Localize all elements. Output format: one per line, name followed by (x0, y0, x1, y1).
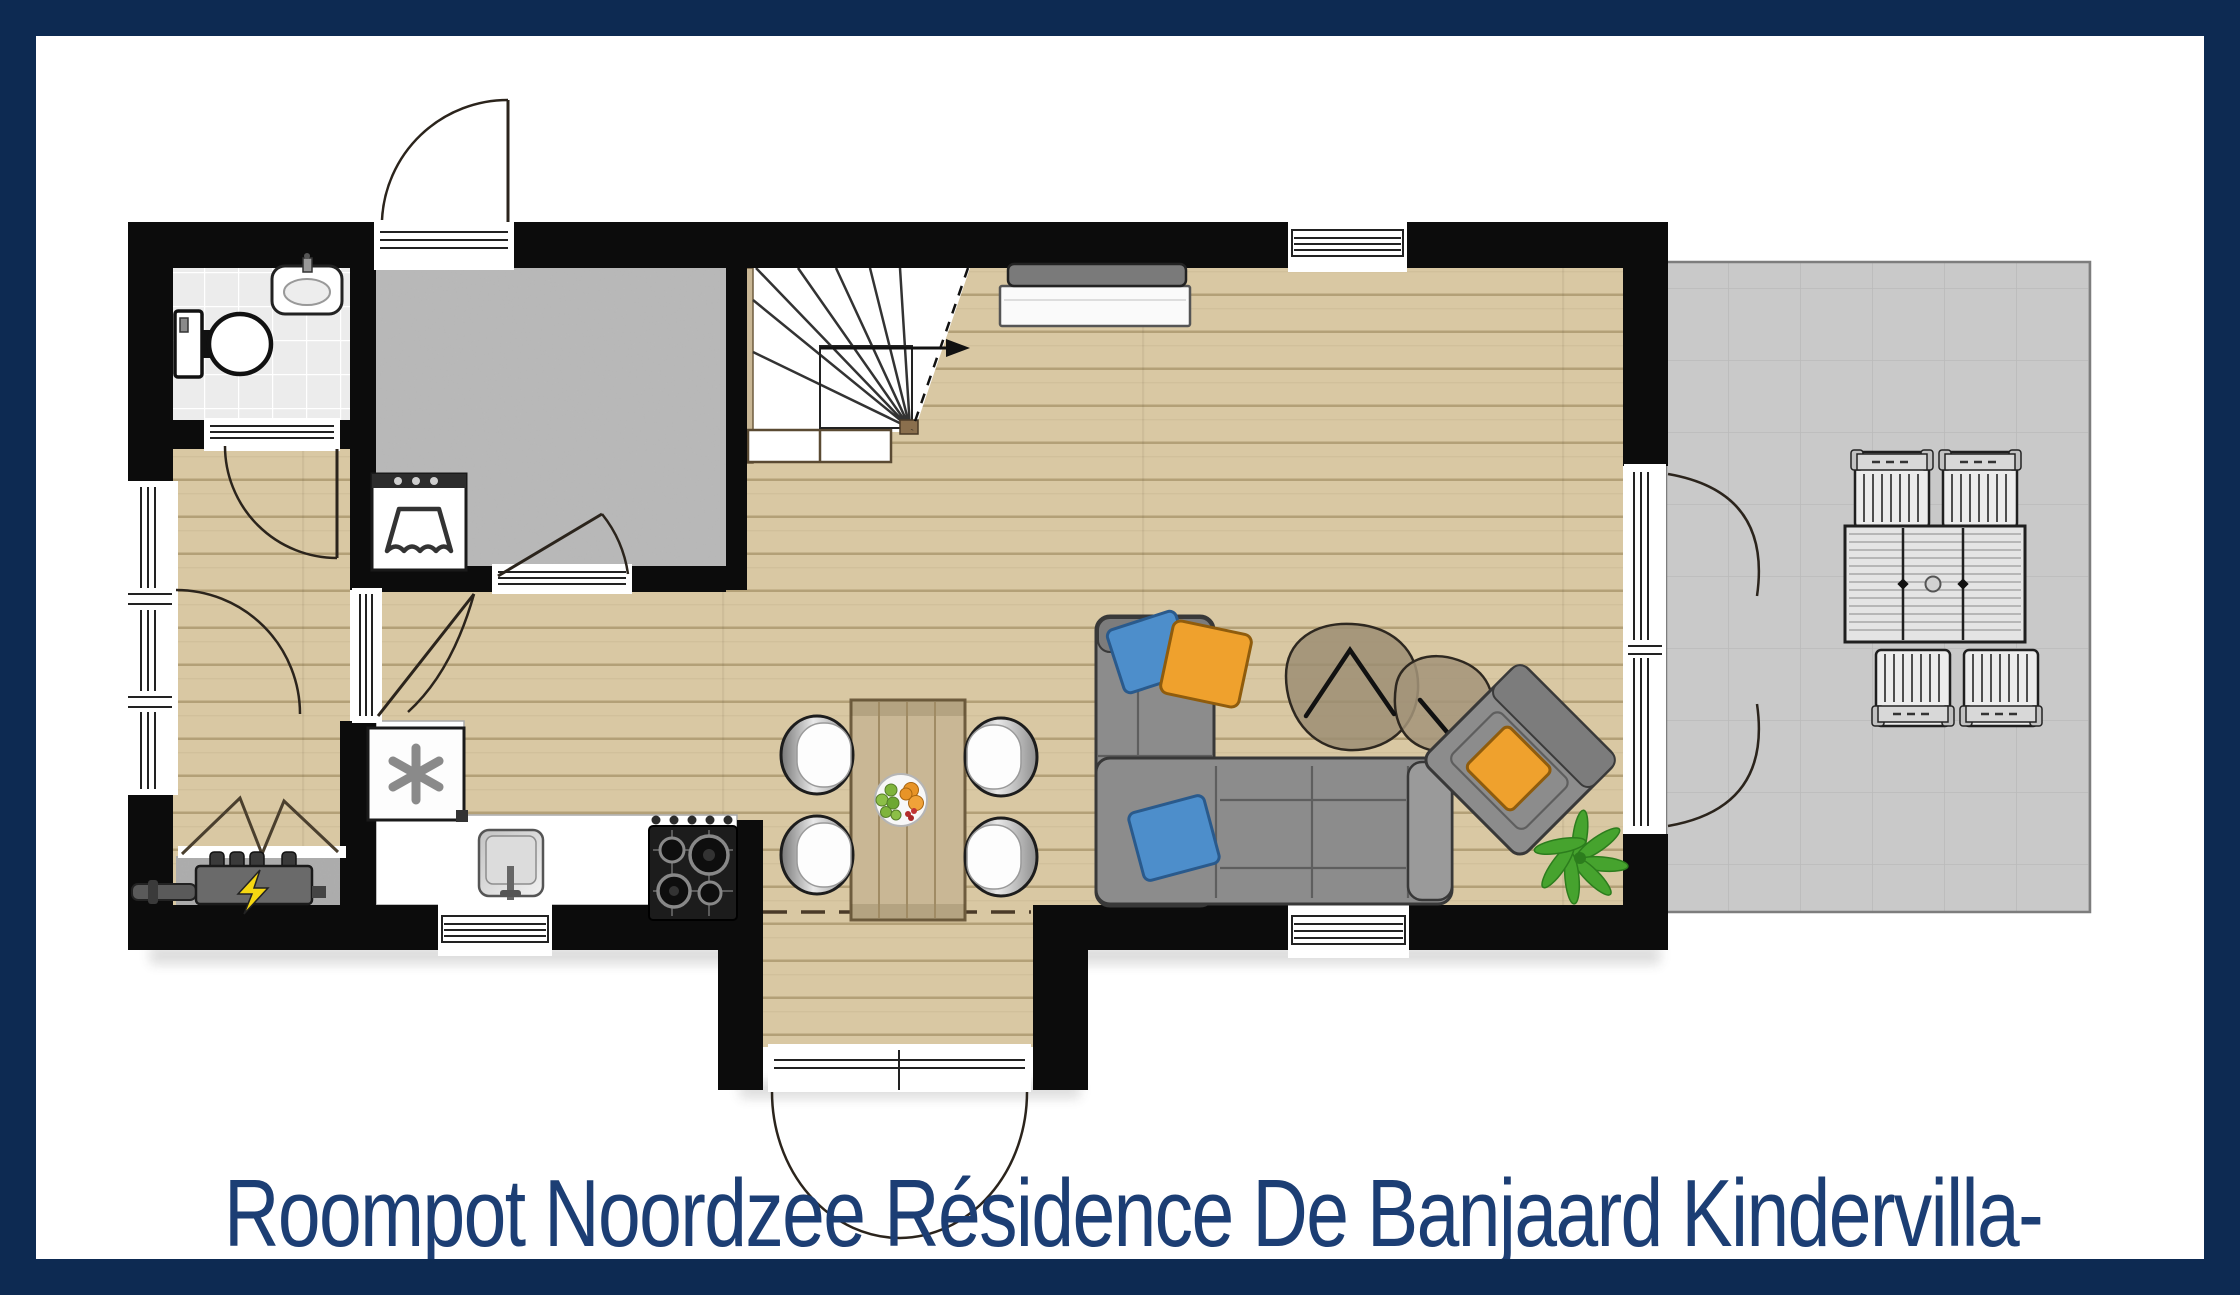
terrace-chair (1851, 450, 1933, 528)
vestibule-floor (763, 905, 1033, 1047)
kitchen-window (438, 898, 552, 956)
dining-chair (781, 716, 853, 794)
gas-hob (649, 816, 737, 921)
stair-newel (900, 420, 918, 434)
caption: Roompot Noordzee Résidence De Banjaard K… (224, 1164, 2016, 1265)
terrace-chair (1939, 450, 2021, 528)
sofa-cushion-orange (1159, 619, 1253, 708)
laundry-icon (387, 509, 451, 551)
dining-chair (965, 818, 1037, 896)
terrace (1666, 262, 2090, 912)
tv-cabinet (1000, 264, 1190, 326)
top-window (1288, 214, 1407, 272)
freezer (368, 728, 468, 822)
living-window (1288, 898, 1409, 958)
fruit-bowl (875, 774, 927, 826)
tv (1008, 264, 1186, 286)
dining-chair (781, 816, 853, 894)
terrace-table (1845, 526, 2025, 642)
hall-side-windows (122, 481, 178, 795)
floor-plan-drawing (0, 0, 2240, 1295)
toilet (175, 311, 271, 377)
kitchen-sink (479, 830, 543, 900)
storage-exterior-door (374, 100, 514, 270)
terrace-chair (1872, 650, 1954, 726)
floor-plan-image: Roompot Noordzee Résidence De Banjaard K… (0, 0, 2240, 1295)
dining-chair (965, 718, 1037, 796)
dining-table (851, 700, 965, 920)
washing-machine (372, 474, 466, 570)
terrace-chair (1960, 650, 2042, 726)
